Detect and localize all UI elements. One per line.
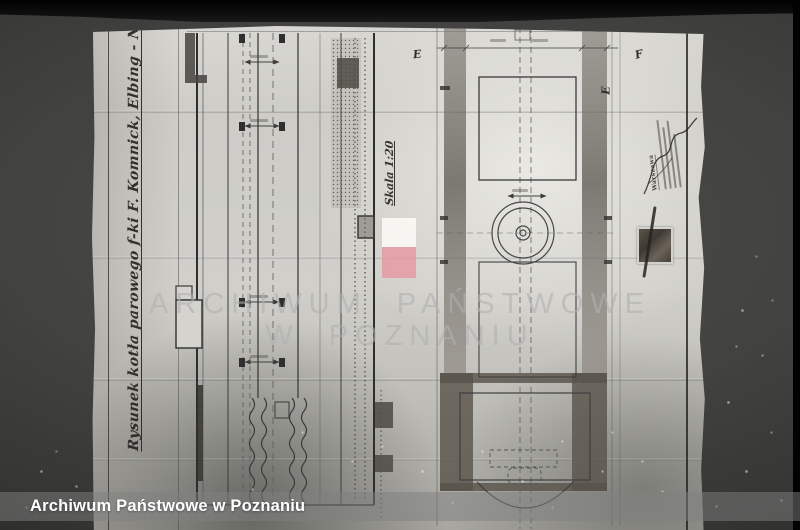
brick-wall-shading: [440, 27, 607, 491]
flange-blocks: [375, 402, 393, 472]
caption-text: Archiwum Państwowe w Poznaniu: [30, 497, 305, 516]
drawing-title: Rysunek kotła parowego f-ki F. Komnick, …: [126, 20, 166, 454]
caption-bar: Archiwum Państwowe w Poznaniu: [0, 492, 800, 521]
corrugated-furnace: [250, 398, 307, 502]
watermark-line2: W POZNANIU: [0, 322, 800, 351]
section-marker-e-side: E: [600, 86, 613, 94]
longitudinal-section-view: [172, 31, 402, 521]
flag-red-field: [382, 247, 416, 278]
archival-photo: Rysunek kotła parowego f-ki F. Komnick, …: [0, 0, 800, 530]
revenue-stamp: [637, 227, 673, 264]
section-marker-e: E: [412, 48, 422, 62]
photo-right-border: [793, 0, 800, 530]
boiler-plan-rect: [479, 77, 576, 180]
archive-flag-watermark: [382, 218, 416, 278]
detail-block: [358, 216, 374, 238]
margin-line: [108, 28, 109, 530]
plan-view: [432, 26, 622, 530]
signature-scribble: [638, 114, 700, 198]
section-marker-f: F: [634, 47, 645, 62]
watermark-line1: ARCHIWUM PAŃSTWOWE: [0, 290, 800, 319]
dome-cap-outline: [515, 30, 530, 40]
hatched-wall-band: [331, 38, 361, 208]
paper-sheet: Rysunek kotła parowego f-ki F. Komnick, …: [92, 26, 706, 530]
flag-white-field: [382, 218, 416, 247]
